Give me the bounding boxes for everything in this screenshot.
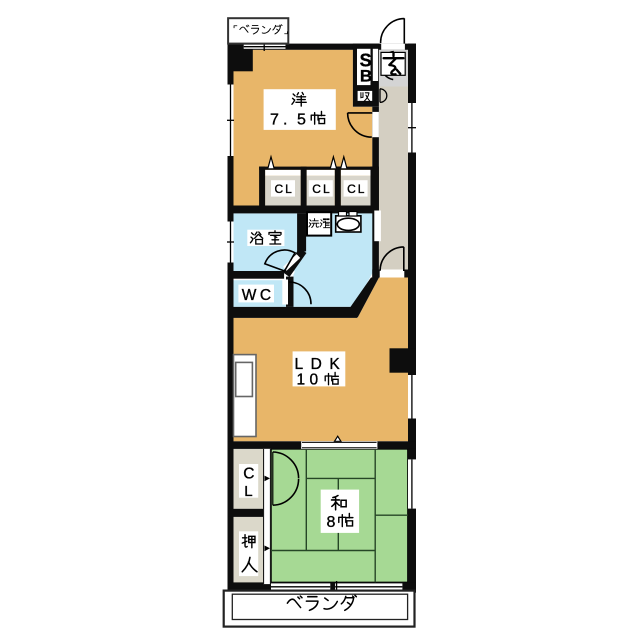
- svg-text:1: 1: [297, 372, 306, 389]
- svg-text:CL: CL: [275, 182, 294, 196]
- svg-text:8: 8: [327, 514, 336, 531]
- svg-text:0: 0: [310, 372, 319, 389]
- svg-text:B: B: [360, 67, 372, 86]
- svg-text:LDK: LDK: [295, 356, 348, 373]
- svg-text:5: 5: [297, 112, 306, 129]
- svg-text:CL: CL: [347, 182, 366, 196]
- svg-text:7: 7: [270, 112, 279, 129]
- svg-text:L: L: [244, 483, 252, 500]
- svg-text:CL: CL: [312, 182, 331, 196]
- svg-text:.: .: [283, 112, 287, 129]
- svg-text:C: C: [243, 465, 254, 482]
- svg-text:WC: WC: [242, 287, 275, 304]
